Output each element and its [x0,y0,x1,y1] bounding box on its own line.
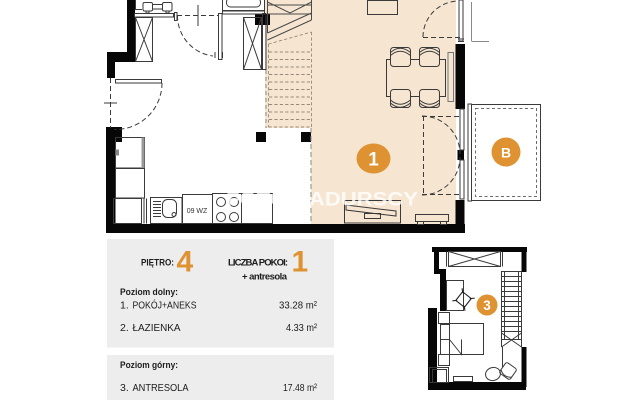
svg-text:4.33 m²: 4.33 m² [286,323,318,334]
svg-text:LICZBA POKOI:: LICZBA POKOI: [228,258,288,269]
svg-text:1: 1 [292,246,309,279]
svg-text:Poziom dolny:: Poziom dolny: [120,287,178,298]
svg-text:33.28 m²: 33.28 m² [279,301,318,312]
svg-text:3: 3 [483,298,491,313]
svg-text:4: 4 [177,246,194,279]
svg-text:1: 1 [368,150,379,171]
svg-text:2.: 2. [120,322,129,334]
svg-text:FOTO BADURSCY: FOTO BADURSCY [226,190,418,211]
svg-text:+ antresola: + antresola [242,272,288,283]
svg-text:POKÓJ+ANEKS: POKÓJ+ANEKS [133,299,197,312]
svg-text:3.: 3. [120,382,129,394]
svg-text:ŁAZIENKA: ŁAZIENKA [133,322,181,334]
svg-text:17.48 m²: 17.48 m² [283,383,318,394]
svg-text:09 WZ: 09 WZ [187,208,208,215]
svg-text:PIĘTRO:: PIĘTRO: [141,258,174,269]
svg-text:ANTRESOLA: ANTRESOLA [133,382,189,394]
svg-text:1.: 1. [120,300,129,312]
svg-text:B: B [501,145,511,161]
svg-text:Poziom górny:: Poziom górny: [120,360,178,371]
